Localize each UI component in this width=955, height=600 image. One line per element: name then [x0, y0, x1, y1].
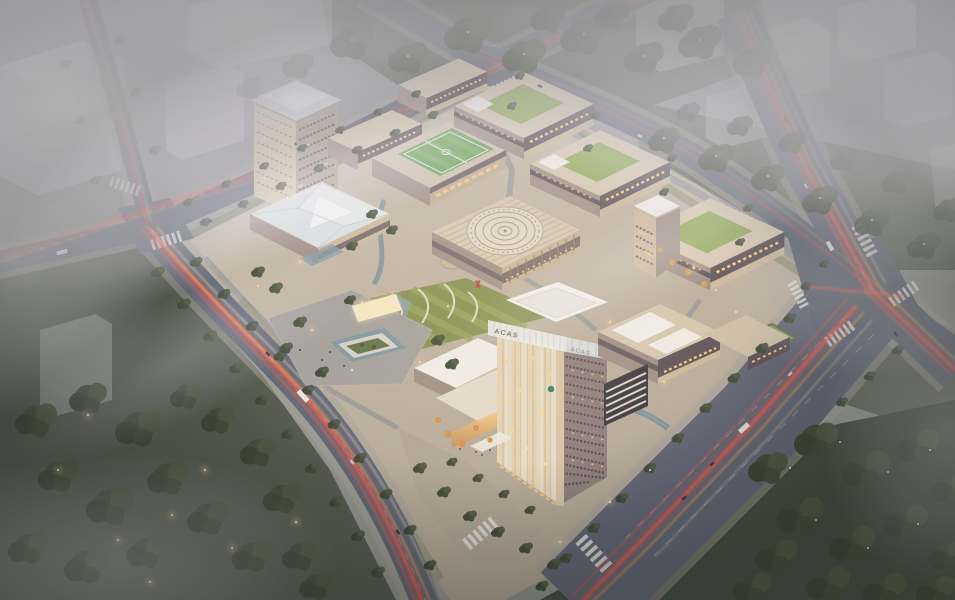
- campus-aerial-rendering: ACAS ACAS: [0, 0, 955, 600]
- atmosphere: [0, 0, 955, 600]
- rendering-canvas: ACAS ACAS: [0, 0, 955, 600]
